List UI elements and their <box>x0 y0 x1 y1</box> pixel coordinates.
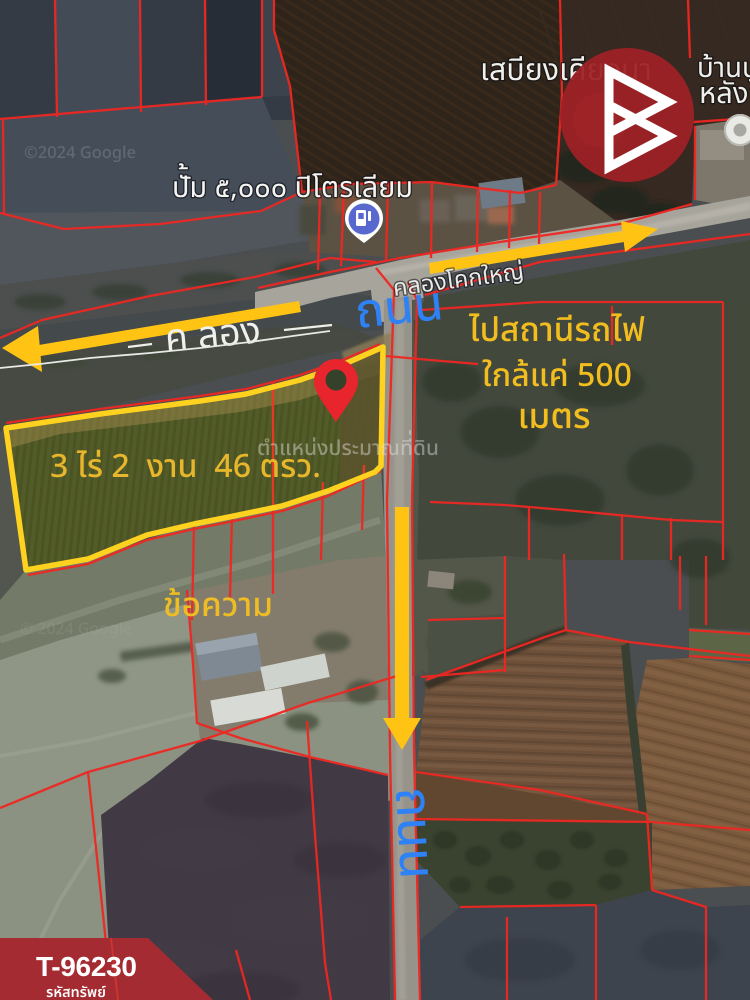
svg-text:T-96230: T-96230 <box>36 951 137 982</box>
